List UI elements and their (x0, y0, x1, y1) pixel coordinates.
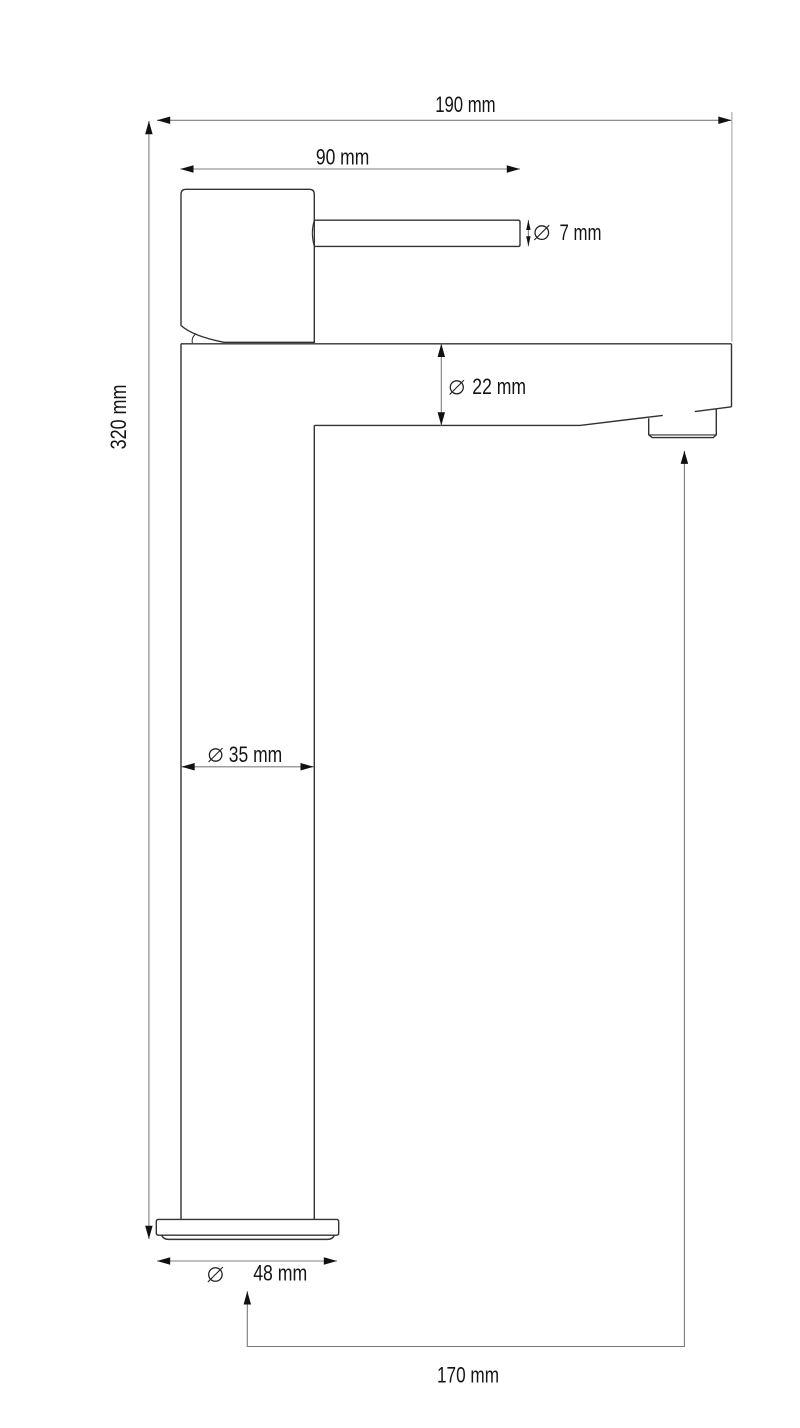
svg-text:7 mm: 7 mm (560, 220, 602, 245)
svg-text:190 mm: 190 mm (435, 92, 495, 117)
svg-text:35 mm: 35 mm (229, 742, 282, 767)
svg-text:320 mm: 320 mm (106, 385, 131, 450)
svg-text:170 mm: 170 mm (437, 1363, 499, 1388)
svg-text:90 mm: 90 mm (316, 145, 369, 170)
svg-text:22 mm: 22 mm (472, 374, 526, 399)
svg-text:48 mm: 48 mm (253, 1261, 307, 1286)
